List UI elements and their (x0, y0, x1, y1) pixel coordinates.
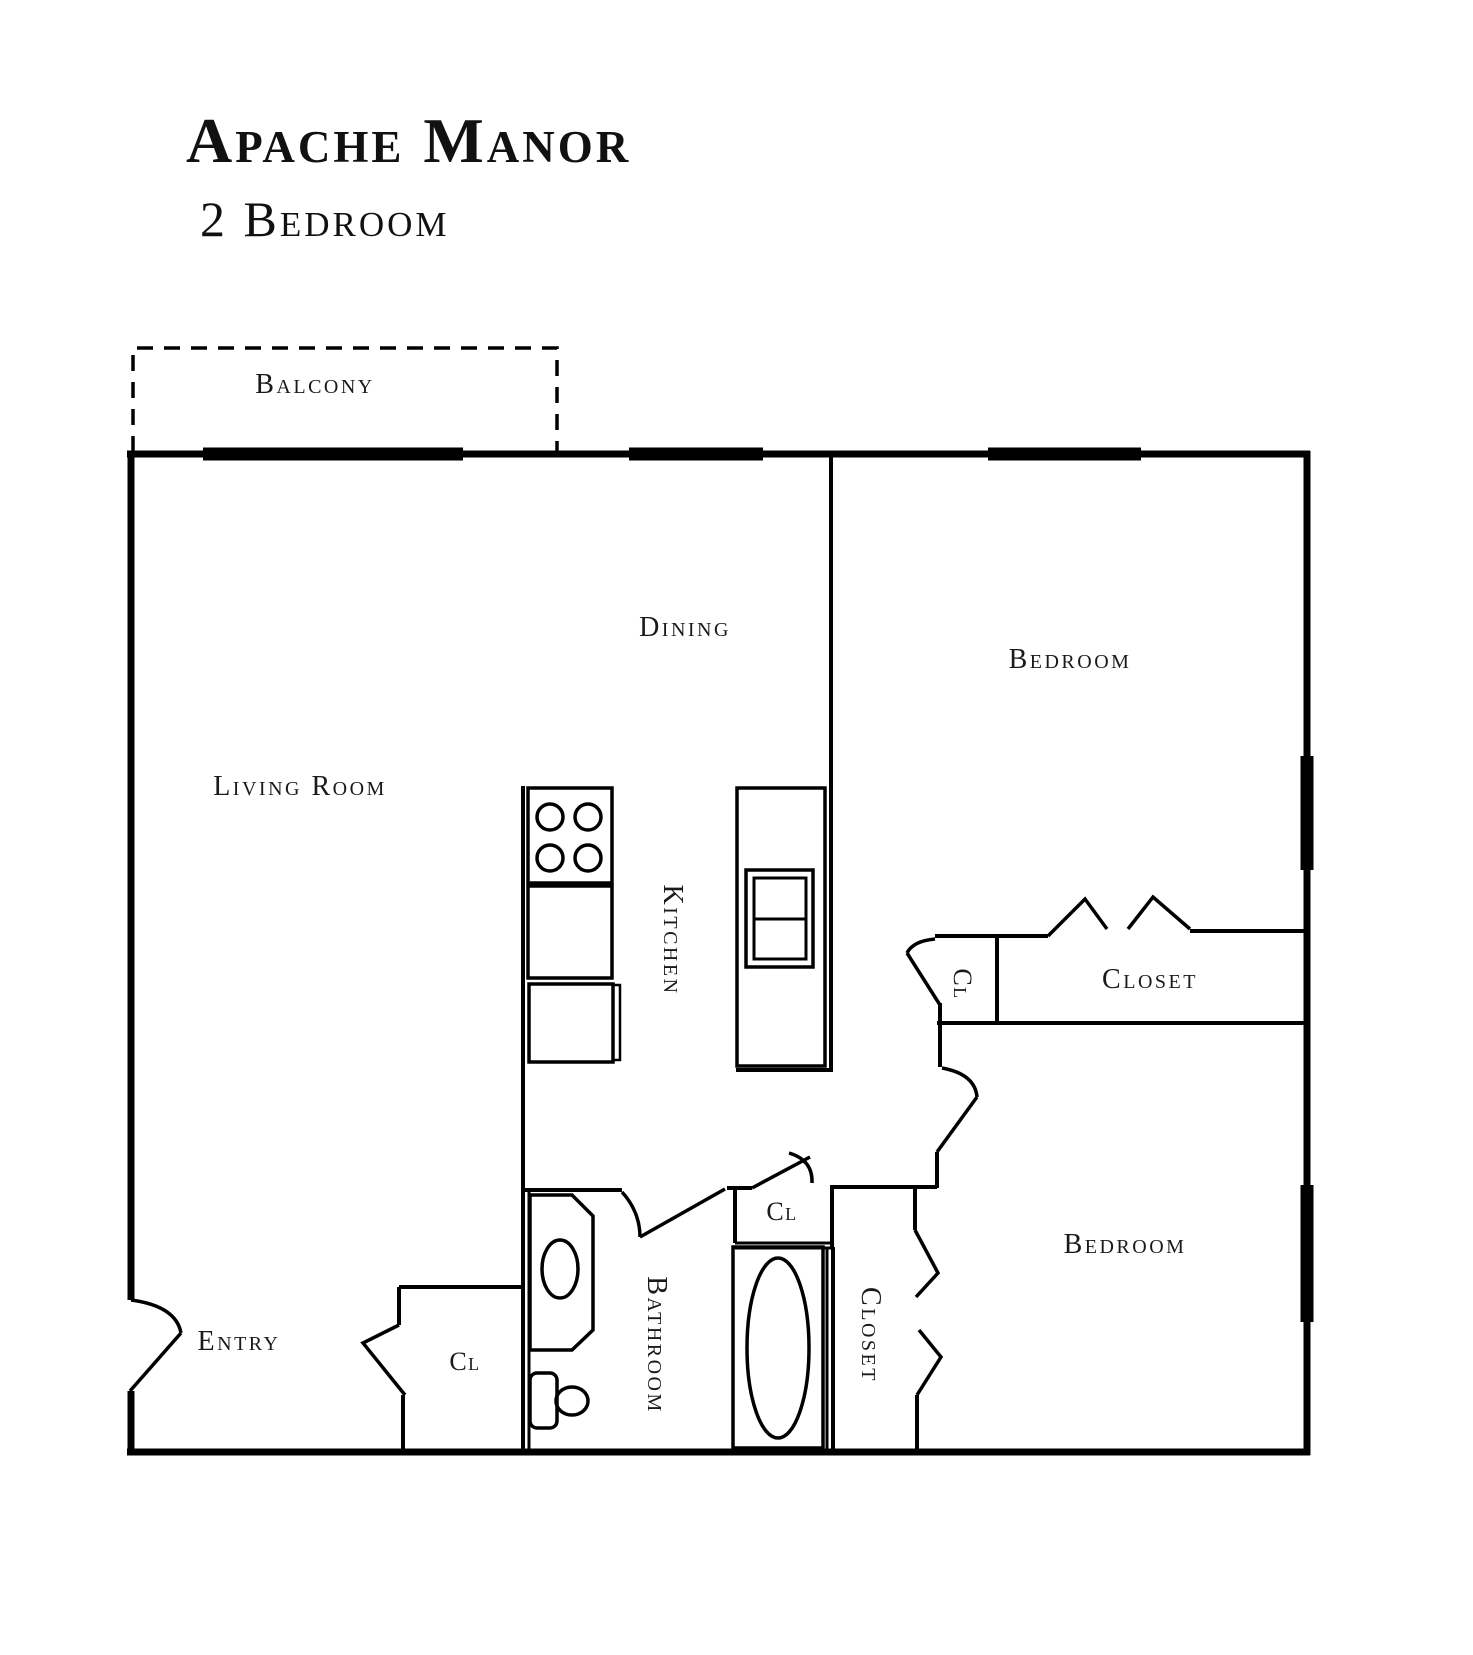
label-closet-top: Closet (1102, 964, 1198, 996)
counter-icon (528, 886, 620, 1062)
label-cl-top: Cl (947, 968, 977, 999)
toilet-icon (530, 1373, 588, 1428)
plan-title: Apache Manor (186, 104, 631, 178)
bathroom-door (622, 1189, 725, 1237)
label-cl-bath: Cl (766, 1197, 797, 1227)
label-bedroom-bottom: Bedroom (1064, 1229, 1187, 1261)
island-icon (737, 788, 825, 1066)
floor-plan-drawing (0, 0, 1473, 1655)
plan-subtitle: 2 Bedroom (200, 190, 450, 248)
label-bathroom: Bathroom (640, 1276, 672, 1414)
entry-door (130, 1300, 181, 1391)
label-balcony: Balcony (255, 369, 375, 401)
bathtub-icon (733, 1247, 823, 1448)
label-cl-entry: Cl (449, 1347, 480, 1377)
vanity-sink-icon (530, 1195, 593, 1350)
cl-top-door (907, 939, 940, 1005)
label-dining: Dining (639, 612, 731, 644)
bedroom-bottom-door (937, 1068, 977, 1152)
label-bedroom-top: Bedroom (1009, 644, 1132, 676)
closet-bottom-bifold (915, 1230, 941, 1395)
label-entry: Entry (198, 1326, 281, 1358)
label-closet-bottom: Closet (854, 1287, 886, 1383)
entry-closet-bifold (363, 1325, 405, 1395)
bath-cl-door (752, 1153, 812, 1188)
label-kitchen: Kitchen (656, 884, 688, 995)
bathroom-fixtures (530, 1195, 823, 1448)
label-living-room: Living Room (213, 771, 387, 803)
stove-icon (528, 788, 612, 883)
floor-plan: Apache Manor 2 Bedroom Balcony Living Ro… (0, 0, 1473, 1655)
closet-top-bifold (1048, 897, 1190, 936)
interior-walls (399, 453, 1307, 1452)
exterior-walls (127, 451, 1310, 1455)
